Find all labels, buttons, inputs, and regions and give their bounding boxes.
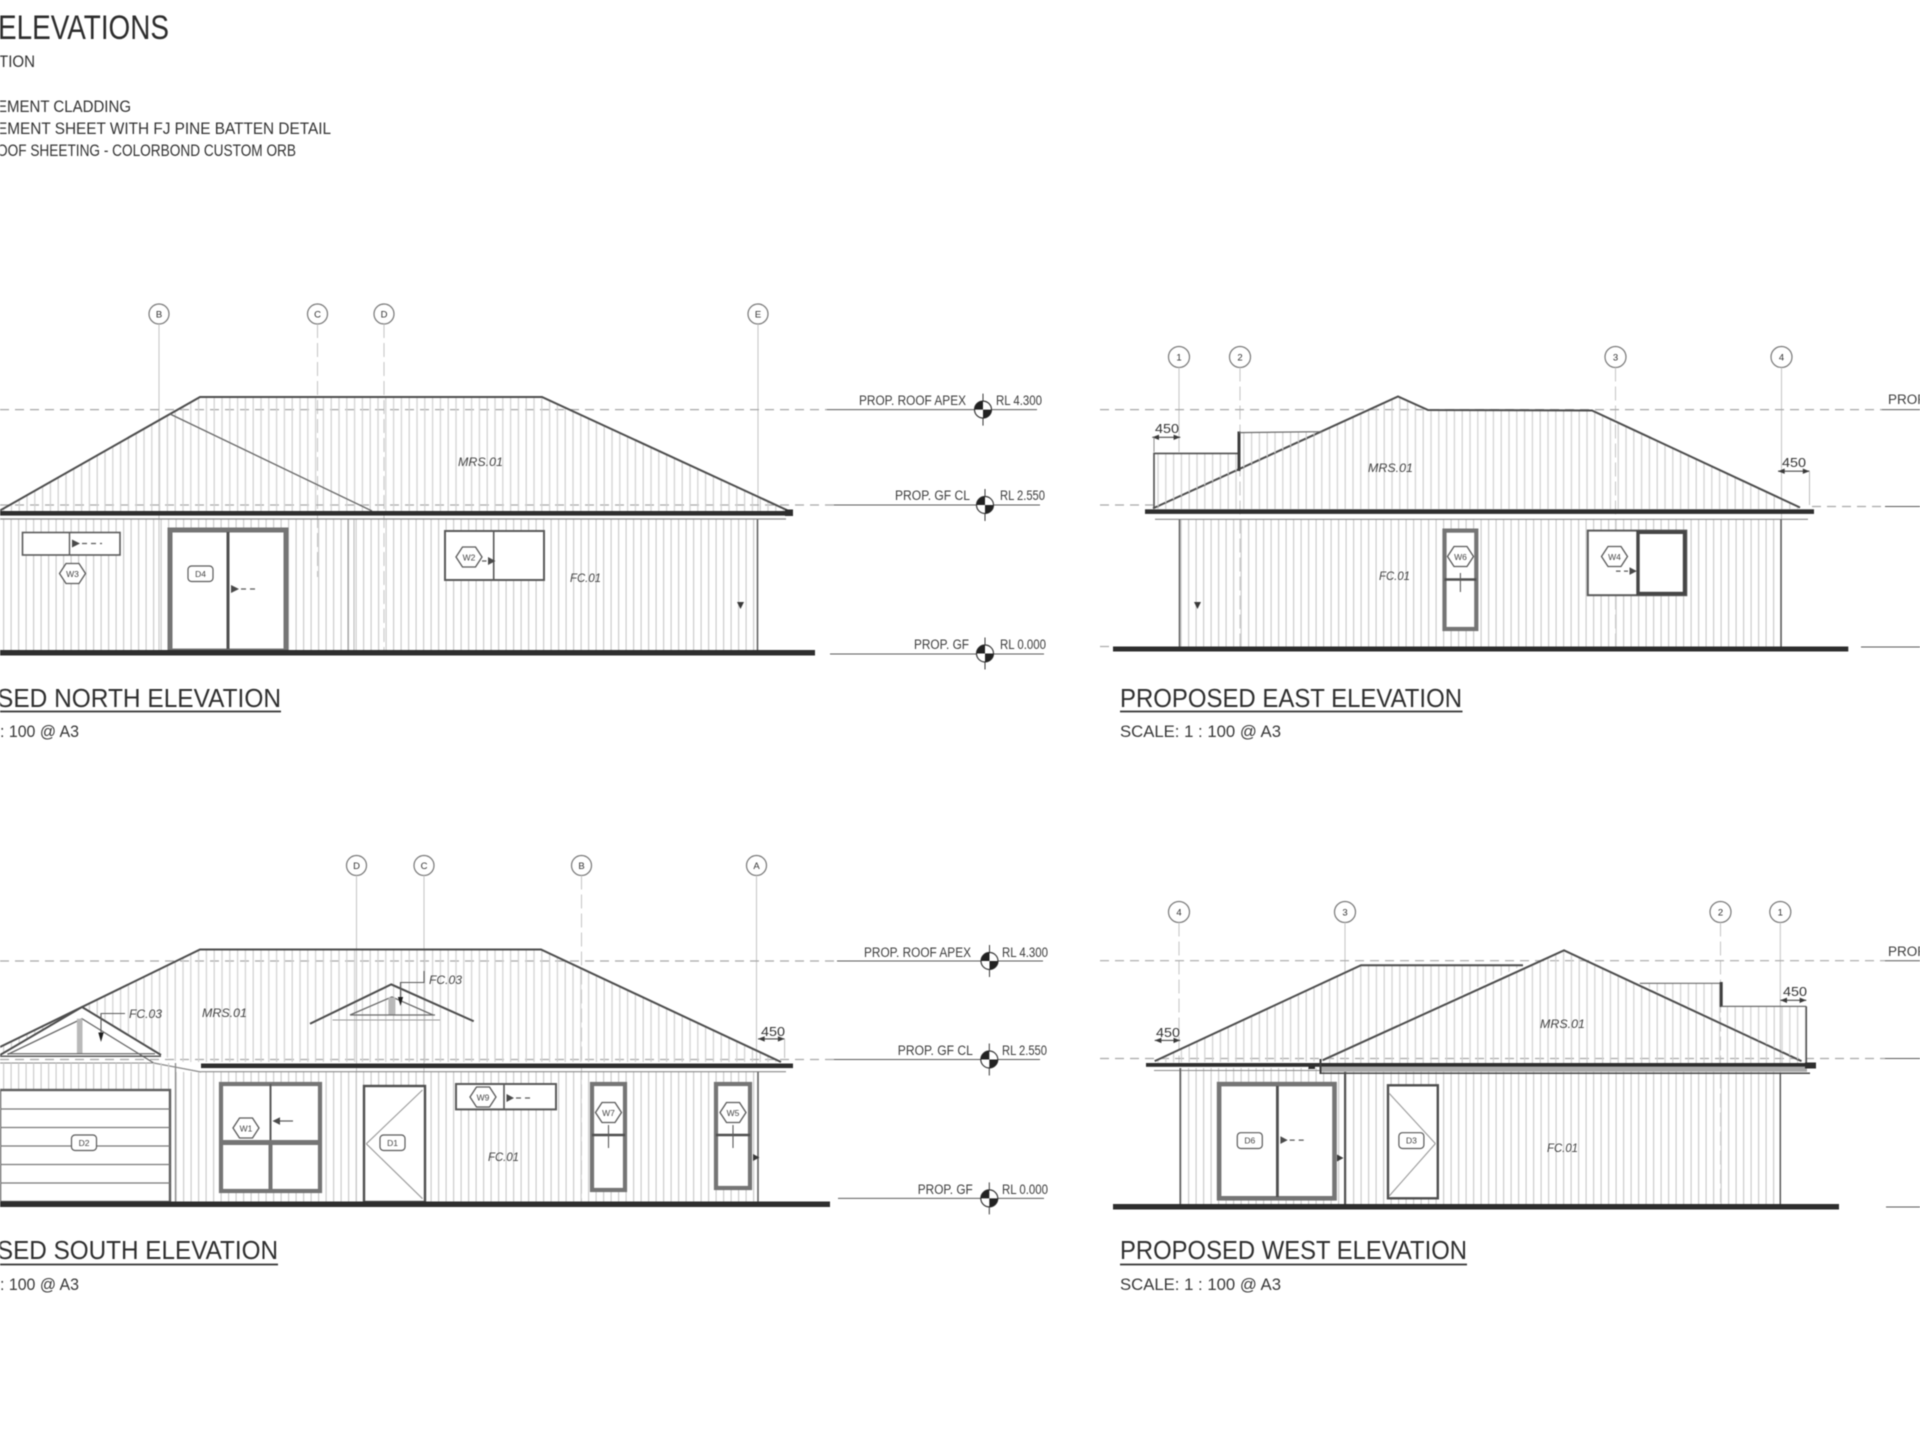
svg-text:W2: W2 bbox=[463, 553, 476, 563]
svg-text:RL 4.300: RL 4.300 bbox=[996, 393, 1042, 408]
svg-text:FC.01: FC.01 bbox=[1547, 1141, 1578, 1155]
svg-text:PROP. GF: PROP. GF bbox=[918, 1182, 973, 1197]
svg-text:3: 3 bbox=[1342, 908, 1347, 919]
svg-text:FC.01: FC.01 bbox=[1379, 569, 1410, 583]
svg-text:MRS.01: MRS.01 bbox=[1540, 1017, 1585, 1031]
svg-text:PROP. ROOF: PROP. ROOF bbox=[1888, 944, 1920, 959]
svg-text:MRS.01: MRS.01 bbox=[202, 1006, 247, 1020]
svg-text:FC.03: FC.03 bbox=[129, 1007, 162, 1021]
svg-text:450: 450 bbox=[1156, 1025, 1180, 1040]
svg-text:D4: D4 bbox=[195, 569, 206, 579]
svg-text:PROPOSED WEST ELEVATION: PROPOSED WEST ELEVATION bbox=[1120, 1235, 1467, 1265]
svg-text:D1: D1 bbox=[387, 1138, 398, 1148]
svg-text:EMENT SHEET WITH FJ PINE BATTE: EMENT SHEET WITH FJ PINE BATTEN DETAIL bbox=[0, 120, 331, 138]
svg-text:PROP. GF CL: PROP. GF CL bbox=[898, 1043, 973, 1058]
svg-text:D6: D6 bbox=[1244, 1136, 1255, 1146]
svg-text:PROP. ROOF: PROP. ROOF bbox=[1888, 392, 1920, 407]
svg-text:PROP. ROOF APEX: PROP. ROOF APEX bbox=[864, 945, 971, 960]
svg-text:MRS.01: MRS.01 bbox=[1368, 461, 1413, 475]
svg-text:ELEVATIONS: ELEVATIONS bbox=[0, 9, 169, 47]
svg-text:W4: W4 bbox=[1608, 552, 1621, 562]
svg-text:: 100 @ A3: : 100 @ A3 bbox=[0, 1275, 79, 1294]
svg-text:OSED SOUTH ELEVATION: OSED SOUTH ELEVATION bbox=[0, 1235, 278, 1265]
svg-text:3: 3 bbox=[1613, 353, 1618, 364]
svg-text:1: 1 bbox=[1176, 353, 1181, 364]
svg-text:RL 4.300: RL 4.300 bbox=[1002, 945, 1048, 960]
svg-text:450: 450 bbox=[1155, 421, 1179, 436]
svg-text:D: D bbox=[381, 310, 388, 321]
svg-text:SCALE: 1 : 100 @ A3: SCALE: 1 : 100 @ A3 bbox=[1120, 1275, 1281, 1294]
svg-text:B: B bbox=[578, 861, 584, 872]
svg-text:C: C bbox=[421, 861, 428, 872]
svg-text:W1: W1 bbox=[240, 1124, 253, 1134]
svg-text:450: 450 bbox=[1783, 984, 1807, 999]
svg-text:SCALE: 1 : 100 @ A3: SCALE: 1 : 100 @ A3 bbox=[1120, 722, 1281, 741]
svg-text:W6: W6 bbox=[1454, 552, 1467, 562]
svg-text:4: 4 bbox=[1176, 908, 1181, 919]
svg-text:FC.01: FC.01 bbox=[488, 1150, 519, 1164]
svg-text:D: D bbox=[353, 861, 360, 872]
svg-text:W7: W7 bbox=[602, 1108, 615, 1118]
svg-text:C: C bbox=[314, 310, 321, 321]
svg-text:D2: D2 bbox=[79, 1138, 90, 1148]
svg-text:2: 2 bbox=[1718, 908, 1723, 919]
svg-text:RL 2.550: RL 2.550 bbox=[1000, 488, 1045, 503]
svg-text:W5: W5 bbox=[727, 1108, 740, 1118]
svg-text:450: 450 bbox=[1782, 455, 1806, 470]
svg-text:OSED NORTH ELEVATION: OSED NORTH ELEVATION bbox=[0, 683, 281, 713]
svg-text:PROP. GF CL: PROP. GF CL bbox=[895, 488, 970, 503]
svg-text:TION: TION bbox=[0, 53, 35, 71]
svg-text:4: 4 bbox=[1779, 353, 1784, 364]
svg-text:1: 1 bbox=[1778, 908, 1783, 919]
svg-text:FC.01: FC.01 bbox=[570, 571, 601, 585]
svg-text:RL 0.000: RL 0.000 bbox=[1000, 637, 1046, 652]
svg-text:PROP. ROOF APEX: PROP. ROOF APEX bbox=[859, 393, 966, 408]
svg-text:RL 0.000: RL 0.000 bbox=[1002, 1182, 1048, 1197]
svg-text:PROP. GF: PROP. GF bbox=[914, 637, 969, 652]
svg-text:FC.03: FC.03 bbox=[429, 973, 462, 987]
svg-text:E: E bbox=[755, 310, 761, 321]
svg-text:RL 2.550: RL 2.550 bbox=[1002, 1043, 1047, 1058]
svg-text:A: A bbox=[753, 861, 760, 872]
svg-text:W9: W9 bbox=[477, 1093, 490, 1103]
svg-text:B: B bbox=[156, 310, 162, 321]
svg-text:D3: D3 bbox=[1406, 1136, 1417, 1146]
svg-text:EMENT CLADDING: EMENT CLADDING bbox=[0, 98, 131, 116]
svg-text:: 100 @ A3: : 100 @ A3 bbox=[0, 722, 79, 741]
svg-text:PROPOSED EAST ELEVATION: PROPOSED EAST ELEVATION bbox=[1120, 683, 1462, 713]
svg-text:MRS.01: MRS.01 bbox=[458, 455, 503, 469]
svg-text:W3: W3 bbox=[66, 569, 79, 579]
svg-text:2: 2 bbox=[1237, 353, 1242, 364]
svg-text:OOF SHEETING - COLORBOND CUSTO: OOF SHEETING - COLORBOND CUSTOM ORB bbox=[0, 142, 296, 160]
